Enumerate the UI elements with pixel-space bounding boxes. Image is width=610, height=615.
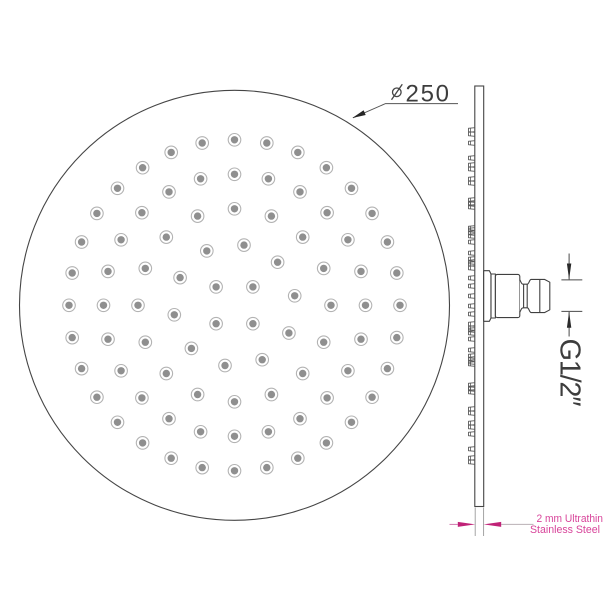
svg-text:G1/2″: G1/2″	[553, 339, 585, 407]
svg-text:Stainless Steel: Stainless Steel	[530, 524, 600, 536]
